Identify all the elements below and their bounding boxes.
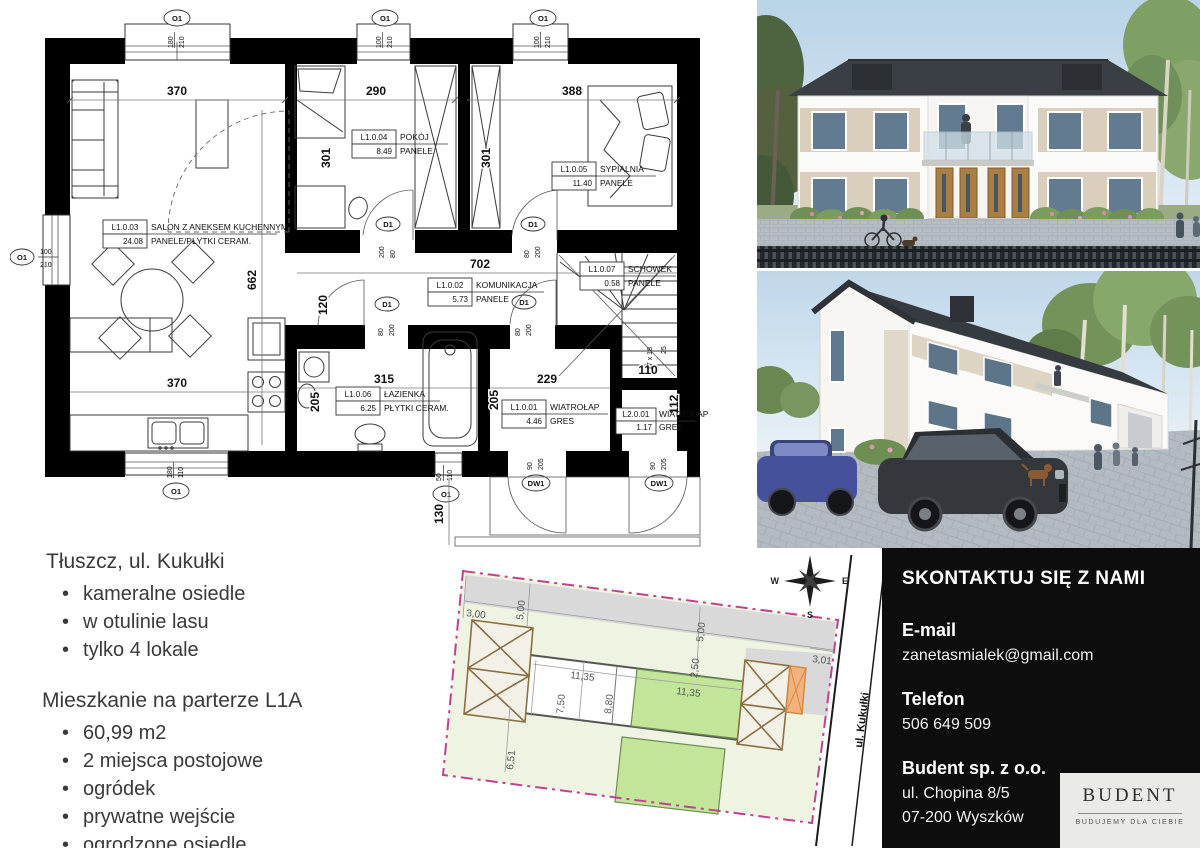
svg-text:2,50: 2,50 — [689, 657, 702, 678]
svg-text:370: 370 — [167, 84, 187, 98]
svg-text:200: 200 — [535, 246, 542, 258]
svg-text:90: 90 — [527, 462, 534, 470]
svg-text:L1.0.01: L1.0.01 — [511, 403, 538, 412]
dining-table — [92, 241, 214, 359]
svg-text:POKÓJ: POKÓJ — [400, 132, 429, 142]
svg-text:GRES: GRES — [550, 416, 574, 426]
svg-text:8,80: 8,80 — [603, 693, 616, 714]
svg-text:180: 180 — [168, 36, 175, 48]
bullet-item: ogródek — [62, 777, 460, 802]
svg-text:GRES: GRES — [659, 422, 683, 432]
svg-text:PANELE: PANELE — [600, 178, 633, 188]
svg-text:210: 210 — [387, 36, 394, 48]
svg-text:120: 120 — [316, 295, 330, 315]
svg-text:L1.0.07: L1.0.07 — [589, 265, 616, 274]
svg-text:110: 110 — [447, 470, 454, 481]
contact-panel: SKONTAKTUJ SIĘ Z NAMI E-mail zanetasmial… — [882, 548, 1200, 848]
svg-text:200: 200 — [389, 324, 396, 336]
render-front-photo — [757, 0, 1200, 268]
svg-text:25: 25 — [661, 346, 668, 354]
street-label: ul. Kukułki — [853, 692, 872, 749]
svg-text:5,00: 5,00 — [695, 621, 708, 642]
svg-text:S: S — [807, 610, 813, 620]
svg-text:E: E — [842, 576, 848, 586]
svg-text:210: 210 — [545, 36, 552, 48]
building-front — [788, 60, 1168, 224]
svg-text:210: 210 — [179, 36, 186, 48]
email-value: zanetasmialek@gmail.com — [902, 647, 1200, 665]
logo-divider — [1078, 813, 1182, 814]
info-block: Tłuszcz, ul. Kukułki kameralne osiedle w… — [40, 550, 460, 848]
svg-text:110: 110 — [178, 467, 185, 478]
svg-text:17 x 18: 17 x 18 — [647, 347, 654, 370]
svg-text:7,50: 7,50 — [555, 693, 568, 714]
svg-text:370: 370 — [167, 376, 187, 390]
entry-door-marker: DW1 90 205 — [629, 458, 687, 533]
single-bed — [295, 66, 345, 138]
svg-text:WIATROŁAP: WIATROŁAP — [659, 409, 709, 419]
svg-text:WIATROŁAP: WIATROŁAP — [550, 402, 600, 412]
door-marker: D1 80 200 — [512, 190, 557, 258]
site-plan: ul. Kukułki N E S W 3,00 5,00 5,00 2,50 … — [440, 555, 885, 848]
location-bullets: kameralne osiedle w otulinie lasu tylko … — [40, 582, 460, 663]
pavement — [757, 219, 1200, 249]
svg-text:O1: O1 — [171, 487, 181, 496]
phone-label: Telefon — [902, 689, 1200, 710]
carports-left — [464, 620, 533, 722]
svg-text:O1: O1 — [17, 253, 27, 262]
svg-text:100: 100 — [376, 36, 383, 48]
bullet-item: tylko 4 lokale — [62, 638, 460, 663]
svg-text:5.73: 5.73 — [452, 295, 468, 304]
apartment-bullets: 60,99 m2 2 miejsca postojowe ogródek pry… — [40, 721, 460, 848]
svg-text:W: W — [771, 576, 780, 586]
svg-text:L1.0.02: L1.0.02 — [437, 281, 464, 290]
svg-text:80: 80 — [378, 328, 385, 336]
location-heading: Tłuszcz, ul. Kukułki — [46, 550, 460, 574]
logo-wordmark: BUDENT — [1060, 785, 1200, 807]
entry-door-marker: DW1 90 205 — [508, 458, 566, 533]
bullet-item: prywatne wejście — [62, 805, 460, 830]
svg-text:80: 80 — [390, 250, 397, 258]
svg-text:D1: D1 — [519, 298, 529, 307]
room-label-schowek: L1.0.07 SCHOWEK 0.58 PANELE — [580, 262, 676, 290]
double-bed — [588, 86, 672, 206]
svg-text:1.17: 1.17 — [636, 423, 652, 432]
svg-text:4.46: 4.46 — [526, 417, 542, 426]
svg-text:315: 315 — [374, 372, 394, 386]
svg-text:205: 205 — [487, 390, 501, 410]
svg-text:ŁAZIENKA: ŁAZIENKA — [384, 389, 425, 399]
svg-text:301: 301 — [319, 148, 333, 168]
svg-text:L2.0.01: L2.0.01 — [623, 410, 650, 419]
svg-text:L1.0.06: L1.0.06 — [345, 390, 372, 399]
logo-tagline: BUDUJEMY DLA CIEBIE — [1060, 819, 1200, 826]
bullet-item: ogrodzone osiedle — [62, 833, 460, 848]
contact-title: SKONTAKTUJ SIĘ Z NAMI — [902, 568, 1200, 590]
svg-text:200: 200 — [379, 246, 386, 258]
svg-text:50: 50 — [436, 473, 443, 481]
svg-text:O1: O1 — [441, 490, 451, 499]
bullet-item: w otulinie lasu — [62, 610, 460, 635]
svg-text:6,51: 6,51 — [505, 749, 518, 770]
svg-text:290: 290 — [366, 84, 386, 98]
svg-text:100: 100 — [40, 249, 52, 256]
floor-plan: O1 180 210 O1 100 210 O1 100 210 O1 100 … — [10, 5, 755, 555]
svg-text:0.58: 0.58 — [604, 279, 620, 288]
svg-text:229: 229 — [537, 372, 557, 386]
tv-table — [196, 100, 228, 168]
budent-logo: BUDENT BUDUJEMY DLA CIEBIE — [1060, 773, 1200, 848]
svg-text:PANELE: PANELE — [628, 278, 661, 288]
svg-text:205: 205 — [538, 458, 545, 470]
svg-text:O1: O1 — [380, 14, 390, 23]
svg-text:SCHOWEK: SCHOWEK — [628, 264, 672, 274]
svg-text:180: 180 — [167, 466, 174, 478]
compass-icon: N E S W — [771, 555, 849, 620]
room-label-salon: L1.0.03 SALON Z ANEKSEM KUCHENNYM 24.08 … — [103, 220, 288, 248]
svg-text:O1: O1 — [538, 14, 548, 23]
real-estate-flyer: O1 180 210 O1 100 210 O1 100 210 O1 100 … — [0, 0, 1200, 848]
bullet-item: 60,99 m2 — [62, 721, 460, 746]
carports-right — [737, 660, 790, 750]
room-label-wiatrolap: L1.0.01 WIATROŁAP 4.46 GRES — [502, 400, 608, 428]
svg-text:D1: D1 — [383, 220, 393, 229]
svg-text:90: 90 — [650, 462, 657, 470]
svg-text:L1.0.04: L1.0.04 — [361, 133, 388, 142]
bullet-item: 2 miejsca postojowe — [62, 749, 460, 774]
svg-text:PANELE: PANELE — [400, 146, 433, 156]
svg-text:SYPIALNIA: SYPIALNIA — [600, 164, 644, 174]
svg-text:11.40: 11.40 — [573, 179, 593, 188]
svg-text:301: 301 — [479, 148, 493, 168]
svg-text:DW1: DW1 — [651, 479, 668, 488]
svg-text:5,00: 5,00 — [515, 599, 528, 620]
carport-orange — [786, 666, 806, 714]
svg-text:388: 388 — [562, 84, 582, 98]
svg-text:D1: D1 — [528, 220, 538, 229]
svg-text:DW1: DW1 — [528, 479, 545, 488]
svg-text:24.08: 24.08 — [123, 237, 144, 246]
email-label: E-mail — [902, 620, 1200, 641]
svg-text:702: 702 — [470, 257, 490, 271]
apartment-heading: Mieszkanie na parterze L1A — [42, 689, 460, 713]
svg-text:O1: O1 — [172, 14, 182, 23]
svg-text:205: 205 — [661, 458, 668, 470]
room-label-lazienka: L1.0.06 ŁAZIENKA 6.25 PŁYTKI CERAM. — [336, 387, 449, 415]
room-label-sypialnia: L1.0.05 SYPIALNIA 11.40 PANELE — [552, 162, 656, 190]
svg-text:PŁYTKI CERAM.: PŁYTKI CERAM. — [384, 403, 449, 413]
door-marker: D1 200 80 — [363, 190, 413, 258]
desk-chair — [295, 186, 370, 228]
render-side-photo — [757, 271, 1200, 548]
svg-text:L1.0.05: L1.0.05 — [561, 165, 588, 174]
svg-text:PANELE: PANELE — [476, 294, 509, 304]
phone-value: 506 649 509 — [902, 716, 1200, 734]
svg-text:662: 662 — [245, 270, 259, 290]
sofa — [72, 80, 118, 198]
svg-text:SALON Z ANEKSEM KUCHENNYM: SALON Z ANEKSEM KUCHENNYM — [151, 222, 288, 232]
svg-text:L1.0.03: L1.0.03 — [112, 223, 139, 232]
svg-text:205: 205 — [308, 392, 322, 412]
svg-text:100: 100 — [534, 36, 541, 48]
svg-text:80: 80 — [524, 250, 531, 258]
svg-text:6.25: 6.25 — [360, 404, 376, 413]
svg-text:PANELE/PŁYTKI CERAM.: PANELE/PŁYTKI CERAM. — [151, 236, 251, 246]
svg-text:130: 130 — [432, 504, 446, 524]
bullet-item: kameralne osiedle — [62, 582, 460, 607]
svg-text:D1: D1 — [382, 300, 392, 309]
svg-text:KOMUNIKACJA: KOMUNIKACJA — [476, 280, 538, 290]
svg-text:8.49: 8.49 — [376, 147, 392, 156]
svg-text:210: 210 — [40, 262, 52, 269]
svg-text:80: 80 — [515, 328, 522, 336]
svg-text:200: 200 — [526, 324, 533, 336]
